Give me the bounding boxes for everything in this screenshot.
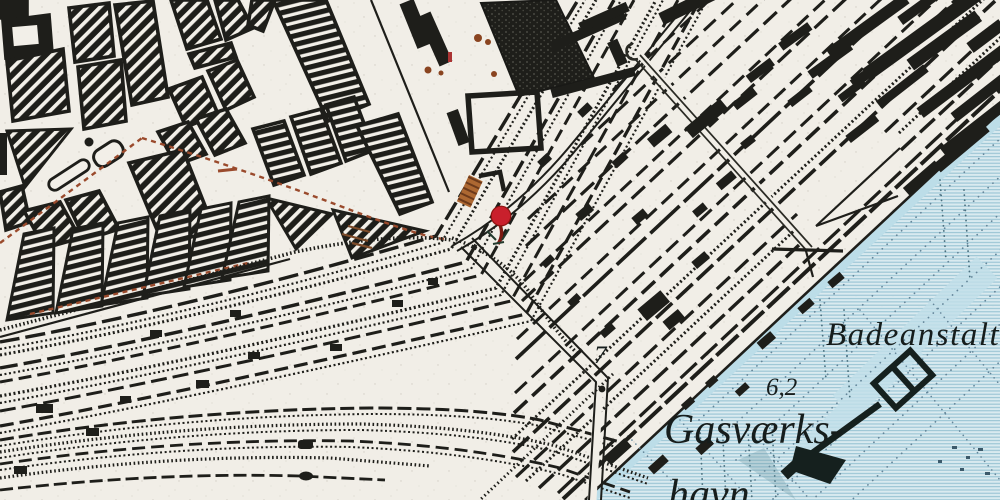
- svg-text:Gasværks-: Gasværks-: [664, 407, 844, 453]
- svg-text:7: 7: [594, 342, 608, 369]
- svg-text:havn.: havn.: [668, 472, 760, 500]
- svg-text:6,2: 6,2: [766, 374, 797, 401]
- svg-text:Badeanstalt: Badeanstalt: [826, 317, 1000, 353]
